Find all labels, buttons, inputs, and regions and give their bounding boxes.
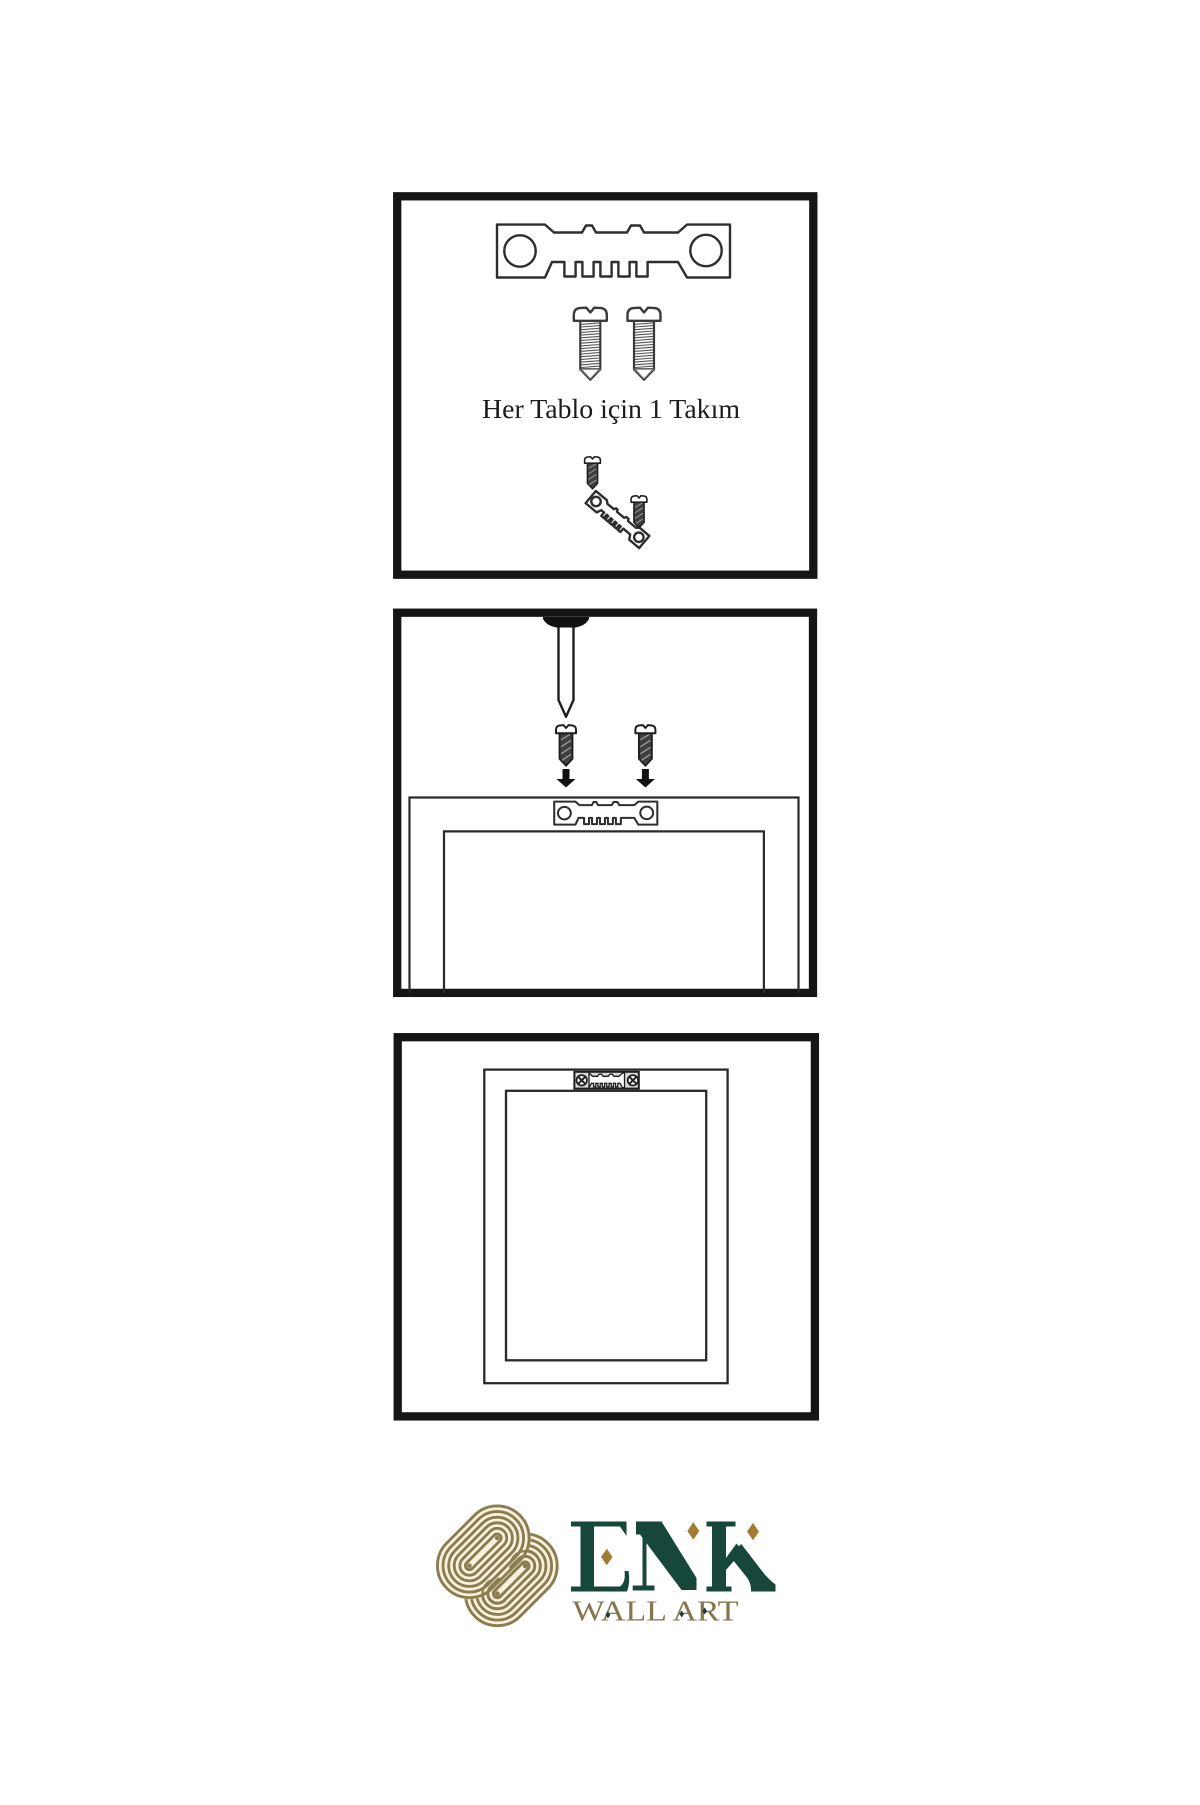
- svg-text:Her Tablo için 1 Takım: Her Tablo için 1 Takım: [482, 394, 740, 424]
- svg-text:WALL ART: WALL ART: [572, 1597, 738, 1628]
